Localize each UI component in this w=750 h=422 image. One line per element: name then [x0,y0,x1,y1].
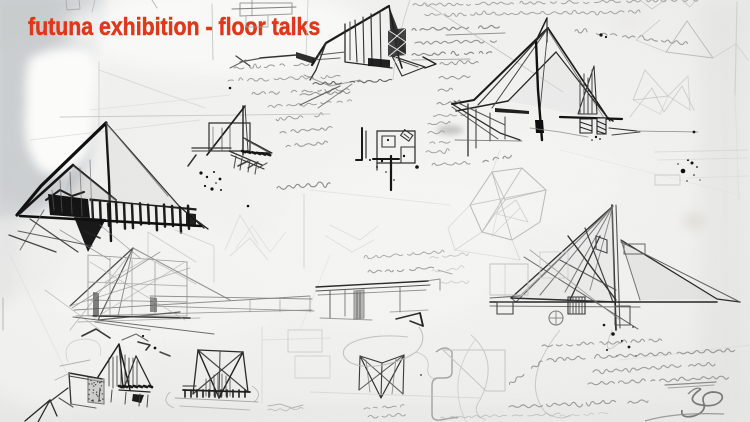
svg-text:futuna exhibition - floor talk: futuna exhibition - floor talks [28,12,320,40]
